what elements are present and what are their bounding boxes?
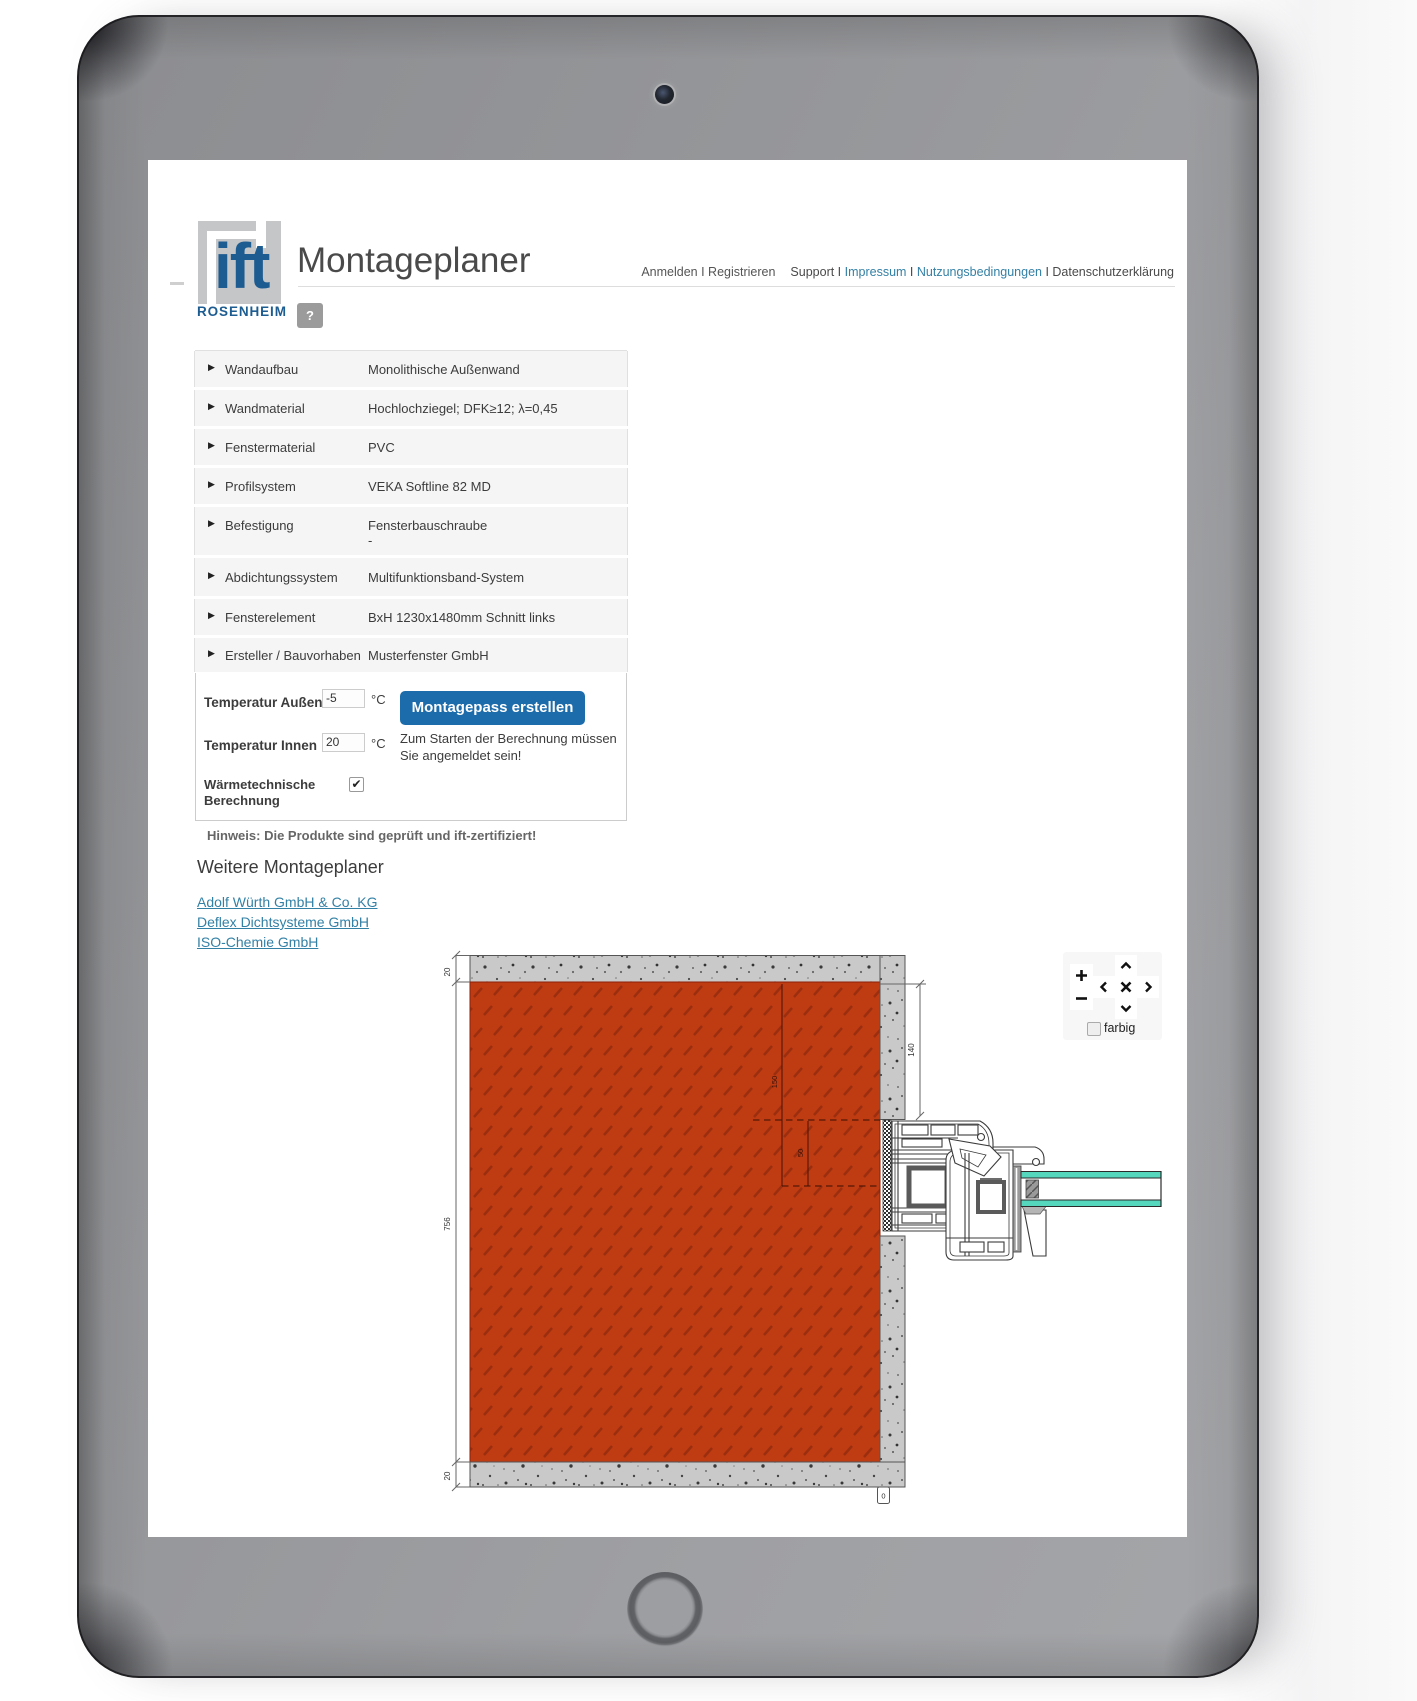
svg-text:0: 0 bbox=[881, 1492, 885, 1501]
svg-text:50: 50 bbox=[796, 1149, 805, 1157]
svg-text:756: 756 bbox=[443, 1217, 452, 1231]
svg-text:150: 150 bbox=[770, 1076, 779, 1089]
svg-text:20: 20 bbox=[443, 1471, 452, 1480]
svg-text:140: 140 bbox=[907, 1043, 916, 1057]
svg-text:20: 20 bbox=[443, 967, 452, 976]
